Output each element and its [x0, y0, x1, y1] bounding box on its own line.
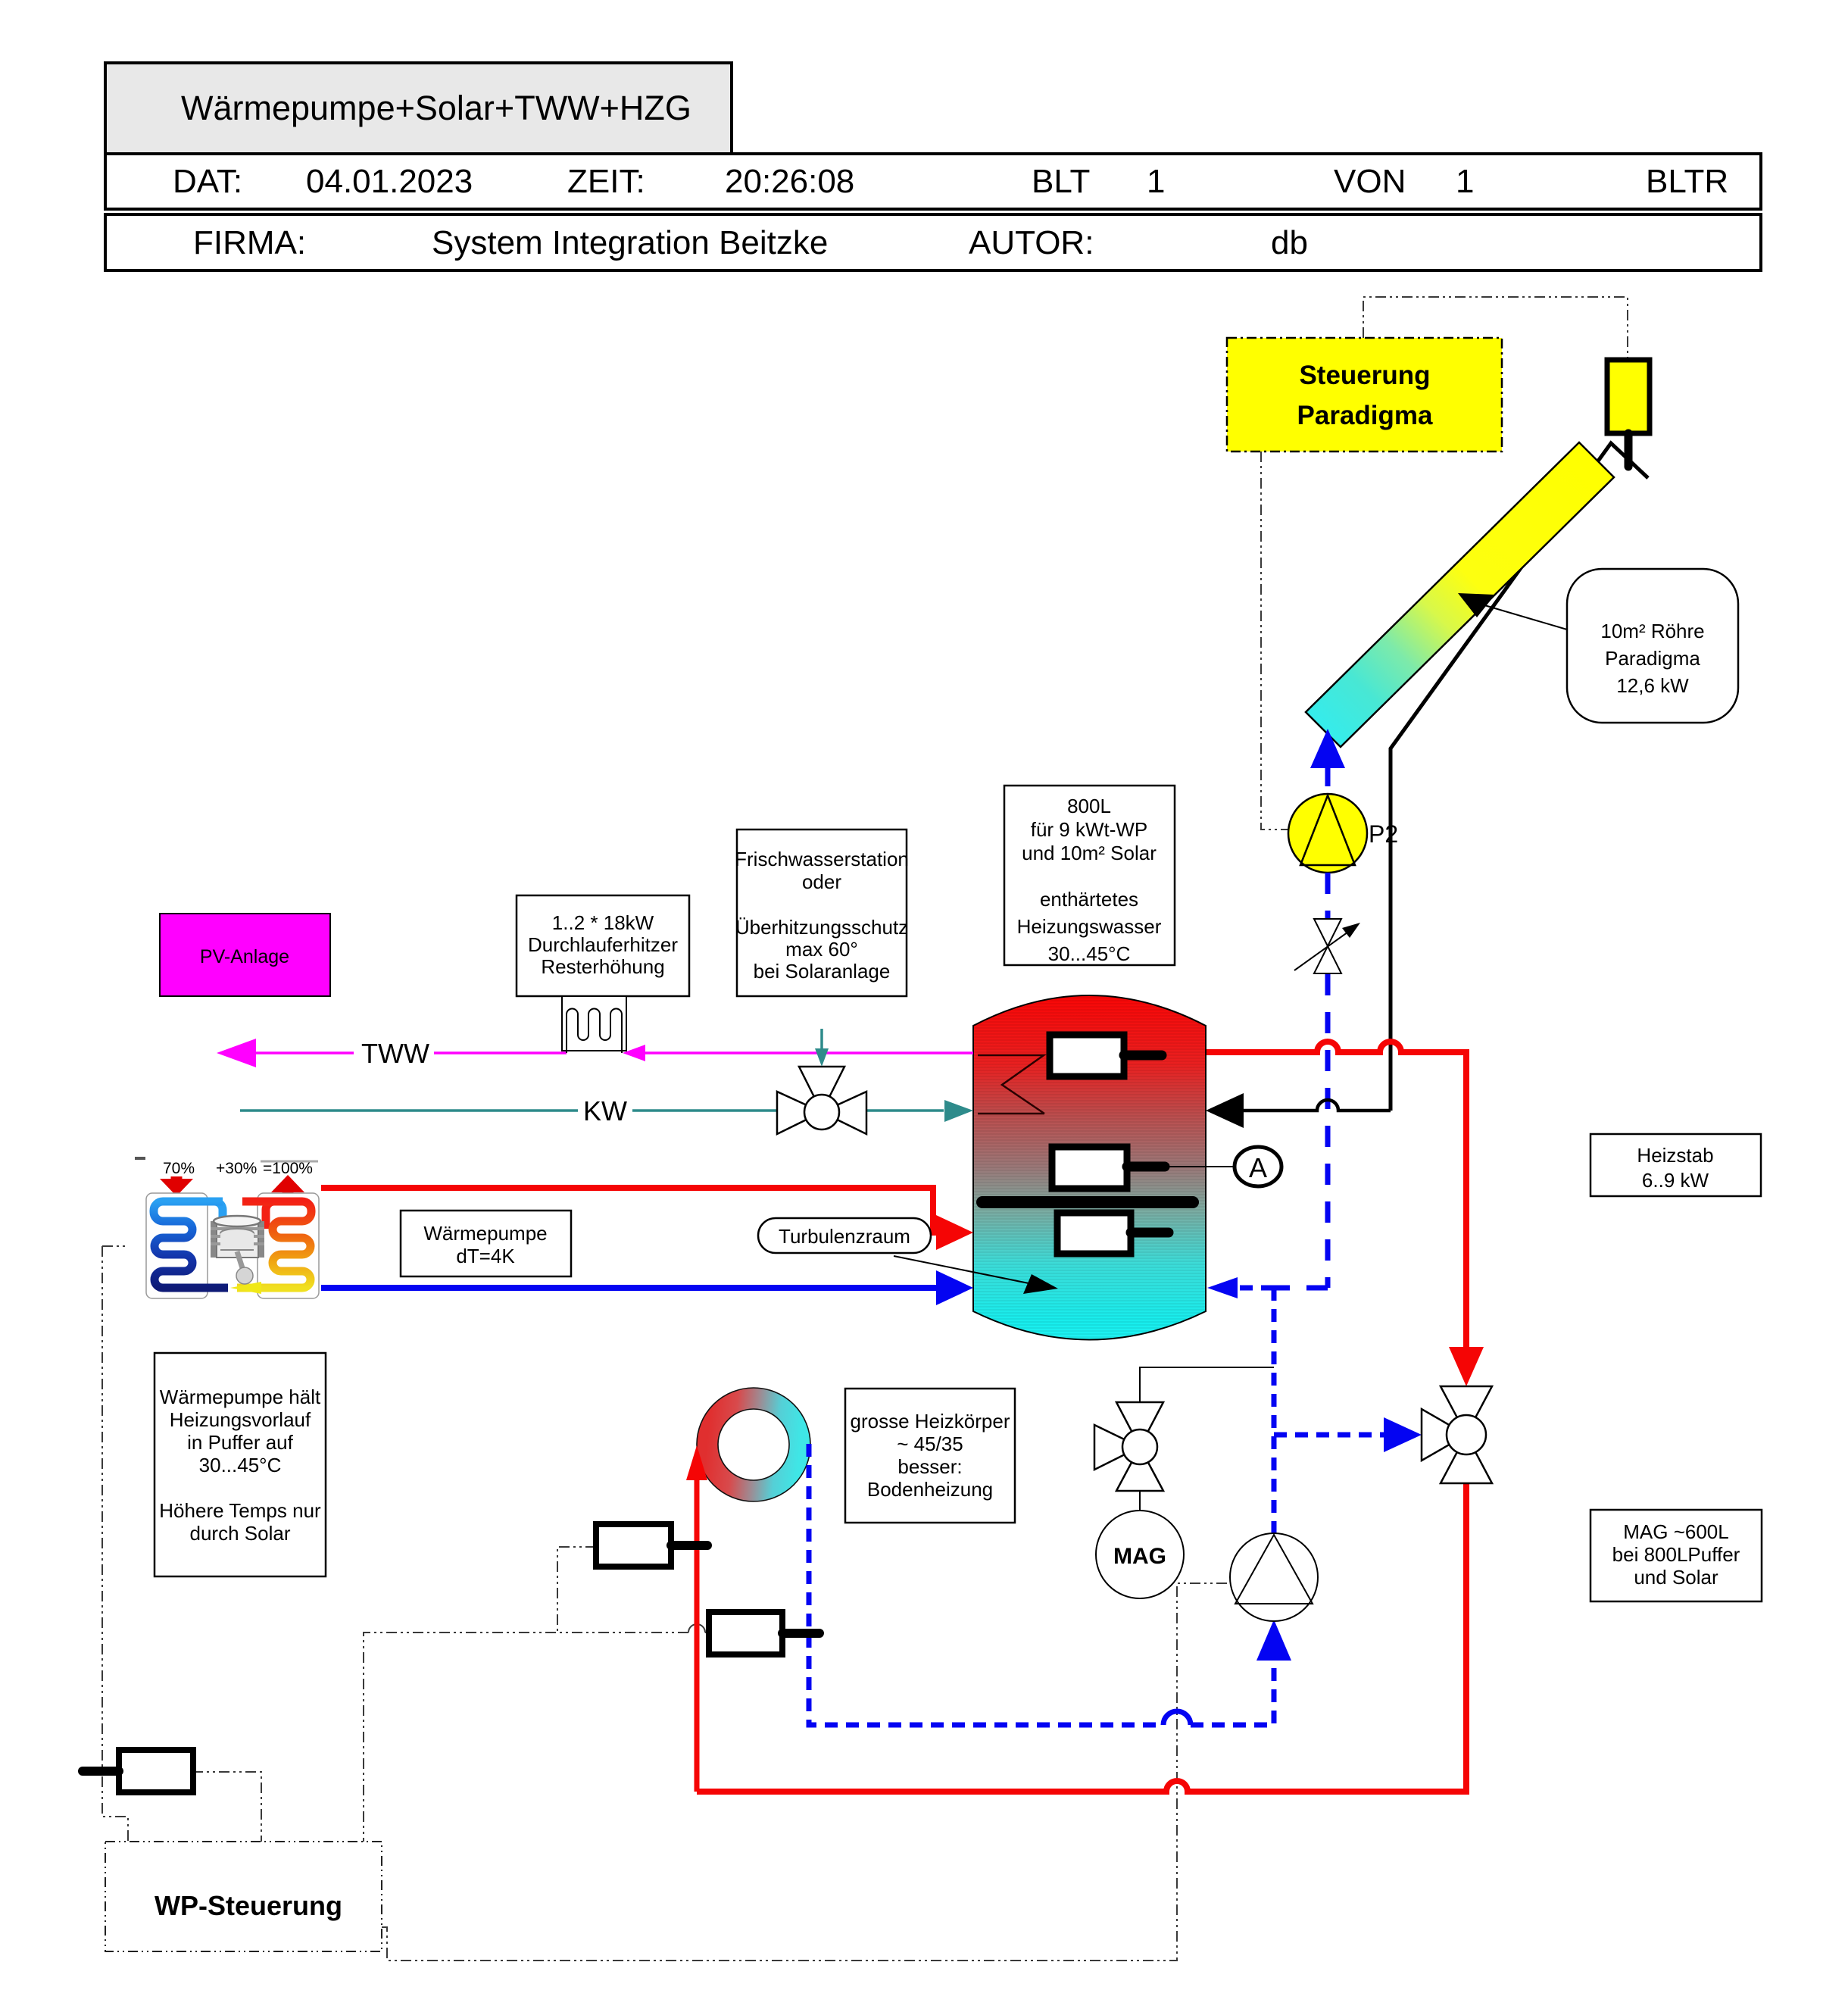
svg-text:Paradigma: Paradigma [1605, 647, 1700, 670]
svg-text:Heizungswasser: Heizungswasser [1017, 915, 1162, 938]
svg-text:db: db [1271, 224, 1308, 261]
svg-text:BLTR: BLTR [1646, 163, 1728, 200]
svg-text:DAT:: DAT: [173, 163, 242, 200]
svg-text:oder: oder [802, 870, 841, 893]
svg-text:TWW: TWW [361, 1038, 429, 1069]
svg-text:Höhere Temps nur: Höhere Temps nur [159, 1499, 321, 1522]
svg-text:KW: KW [583, 1095, 627, 1126]
svg-text:enthärtetes: enthärtetes [1040, 888, 1138, 911]
svg-text:PV-Anlage: PV-Anlage [200, 946, 289, 967]
svg-text:Überhitzungsschutz: Überhitzungsschutz [735, 916, 908, 939]
svg-text:System Integration Beitzke: System Integration Beitzke [432, 224, 828, 261]
svg-text:Heizungsvorlauf: Heizungsvorlauf [170, 1408, 311, 1431]
svg-text:+30%: +30% [216, 1160, 257, 1177]
svg-text:Frischwasserstation: Frischwasserstation [735, 848, 909, 870]
svg-text:12,6 kW: 12,6 kW [1616, 674, 1689, 697]
svg-text:max 60°: max 60° [785, 938, 858, 961]
svg-text:Wärmepumpe+Solar+TWW+HZG: Wärmepumpe+Solar+TWW+HZG [181, 89, 691, 127]
svg-text:P2: P2 [1369, 820, 1398, 848]
svg-text:Resterhöhung: Resterhöhung [541, 955, 664, 978]
svg-text:Paradigma: Paradigma [1297, 401, 1433, 430]
svg-text:Turbulenzraum: Turbulenzraum [779, 1225, 910, 1248]
svg-text:70%: 70% [163, 1160, 195, 1177]
svg-text:und Solar: und Solar [1634, 1566, 1718, 1589]
svg-text:1: 1 [1147, 163, 1165, 200]
svg-text:bei 800LPuffer: bei 800LPuffer [1612, 1543, 1740, 1566]
svg-text:Bodenheizung: Bodenheizung [867, 1478, 993, 1501]
svg-text:durch Solar: durch Solar [190, 1522, 291, 1545]
svg-text:dT=4K: dT=4K [456, 1245, 515, 1267]
svg-text:Steuerung: Steuerung [1299, 361, 1430, 390]
svg-text:grosse Heizkörper: grosse Heizkörper [851, 1410, 1010, 1433]
svg-text:30...45°C: 30...45°C [199, 1454, 282, 1476]
svg-text:Wärmepumpe: Wärmepumpe [423, 1222, 547, 1245]
svg-text:ZEIT:: ZEIT: [567, 163, 645, 200]
svg-text:800L: 800L [1067, 795, 1111, 817]
svg-text:MAG: MAG [1113, 1544, 1166, 1569]
svg-text:FIRMA:: FIRMA: [193, 224, 306, 261]
svg-text:besser:: besser: [897, 1455, 962, 1478]
svg-text:6..9 kW: 6..9 kW [1642, 1169, 1709, 1192]
svg-text:20:26:08: 20:26:08 [725, 163, 854, 200]
svg-text:und 10m² Solar: und 10m² Solar [1022, 842, 1157, 864]
svg-text:Durchlauferhitzer: Durchlauferhitzer [528, 933, 678, 956]
svg-text:Wärmepumpe hält: Wärmepumpe hält [160, 1386, 321, 1408]
svg-text:1..2 * 18kW: 1..2 * 18kW [552, 911, 654, 934]
svg-text:~ 45/35: ~ 45/35 [897, 1433, 963, 1455]
svg-text:30...45°C: 30...45°C [1048, 942, 1131, 965]
svg-text:in Puffer auf: in Puffer auf [187, 1431, 294, 1454]
svg-text:BLT: BLT [1032, 163, 1090, 200]
svg-text:Heizstab: Heizstab [1637, 1144, 1713, 1167]
svg-text:10m² Röhre: 10m² Röhre [1600, 620, 1704, 642]
svg-text:VON: VON [1334, 163, 1406, 200]
svg-text:1: 1 [1456, 163, 1474, 200]
svg-text:AUTOR:: AUTOR: [969, 224, 1094, 261]
svg-text:MAG ~600L: MAG ~600L [1623, 1520, 1728, 1543]
svg-text:für 9 kWt-WP: für 9 kWt-WP [1031, 818, 1148, 841]
svg-text:04.01.2023: 04.01.2023 [306, 163, 473, 200]
svg-text:bei Solaranlage: bei Solaranlage [754, 960, 891, 983]
svg-text:WP-Steuerung: WP-Steuerung [155, 1890, 342, 1921]
svg-text:A: A [1249, 1152, 1267, 1183]
